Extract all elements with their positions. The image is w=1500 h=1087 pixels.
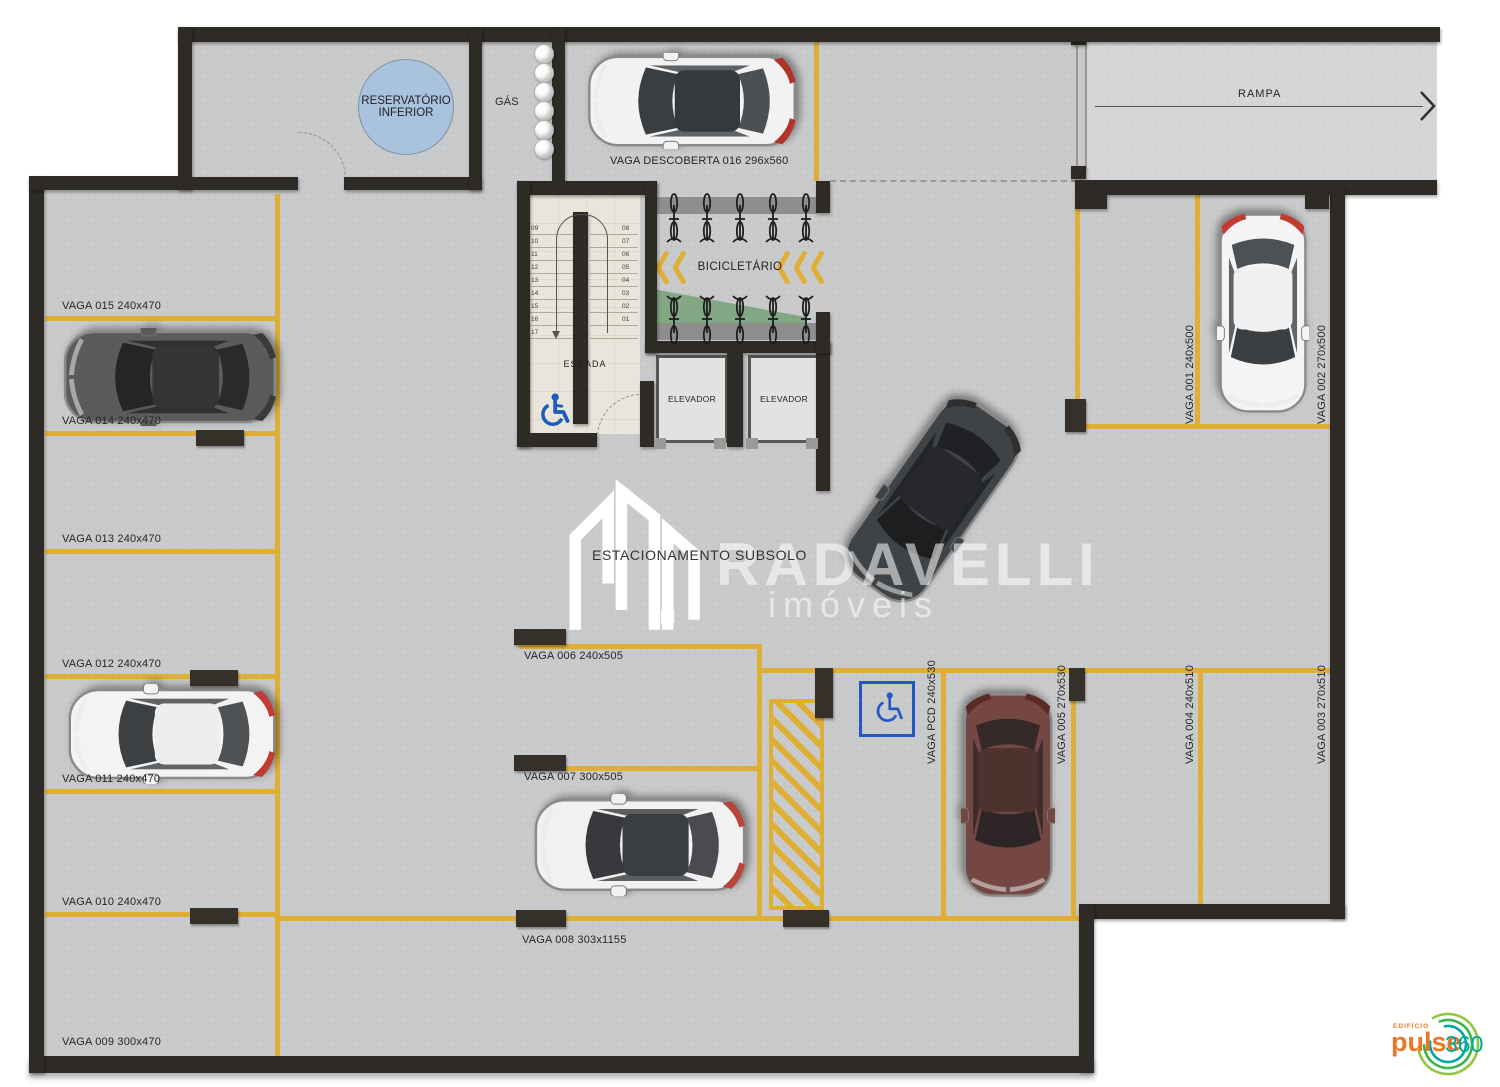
car-vaga-014 <box>62 328 278 426</box>
column <box>514 629 566 645</box>
ramp-bottom-wall <box>1075 180 1437 195</box>
gas-label: GÁS <box>495 96 519 108</box>
spot-label: VAGA 005 270x530 <box>1056 665 1068 764</box>
parking-line <box>814 35 819 181</box>
spot-label: VAGA 001 240x500 <box>1184 325 1196 424</box>
spot-label: VAGA 014 240x470 <box>62 415 161 427</box>
stair-guide-line <box>556 214 608 333</box>
parking-line <box>1075 196 1080 402</box>
ramp-gate <box>1076 40 1087 170</box>
column <box>190 670 238 686</box>
spot-label: VAGA 011 240x470 <box>62 773 160 785</box>
wall-stub <box>1305 193 1329 209</box>
spot-label: VAGA 007 300x505 <box>524 771 623 783</box>
car-vaga-016 <box>586 53 798 149</box>
bike-icon <box>763 193 783 249</box>
parking-floor-plan: RESERVATÓRIO INFERIOR GÁS VAGA DESCOBERT… <box>0 0 1500 1087</box>
bike-area-label: BICICLETÁRIO <box>698 261 783 273</box>
stair-wall-bottom <box>517 433 597 447</box>
stair-step-number: 17 <box>531 329 547 336</box>
gas-cylinder <box>534 139 554 159</box>
stair-step-number: 02 <box>622 303 638 310</box>
car-vaga-011 <box>67 684 277 784</box>
elevator-right-wall <box>816 341 830 491</box>
plan-title: ESTACIONAMENTO SUBSOLO <box>592 547 807 563</box>
parking-line <box>45 549 275 554</box>
gate-post <box>1071 166 1086 179</box>
outer-wall-left <box>29 176 44 1073</box>
spot-label: VAGA 004 240x510 <box>1184 665 1196 764</box>
elevator-door-post <box>746 438 758 449</box>
reservoir-label-line2: INFERIOR <box>379 107 434 119</box>
spot-label: VAGA 002 270x500 <box>1316 325 1328 424</box>
gas-cylinder <box>534 82 554 102</box>
stair-guide-arrow <box>552 331 560 339</box>
reservoir-circle: RESERVATÓRIO INFERIOR <box>358 59 454 155</box>
stair-step-number: 08 <box>622 225 638 232</box>
bike-icon <box>763 289 783 345</box>
bike-icon <box>697 289 717 345</box>
car-vaga-002 <box>1217 209 1309 417</box>
stair-step-number: 12 <box>531 264 547 271</box>
gas-cylinder <box>534 120 554 140</box>
column <box>196 430 244 446</box>
stair-step-number: 07 <box>622 238 638 245</box>
chevron-left-icon <box>810 250 828 284</box>
hatched-area <box>769 699 824 910</box>
stair-wall-right <box>640 381 654 447</box>
stair-step-number: 04 <box>622 277 638 284</box>
stair-step-number: 14 <box>531 290 547 297</box>
ramp-floor <box>1087 40 1437 182</box>
spot-label: VAGA 010 240x470 <box>62 896 161 908</box>
bike-icon <box>697 193 717 249</box>
accessible-parking-sign <box>859 681 915 737</box>
parking-line <box>275 194 280 1062</box>
stair-step-number: 16 <box>531 316 547 323</box>
reservoir-bottom-wall <box>344 177 481 190</box>
stair-step-number: 15 <box>531 303 547 310</box>
column <box>783 910 829 927</box>
gas-cylinder <box>534 63 554 83</box>
car-vaga-007 <box>533 794 747 896</box>
wall-stub <box>1075 193 1107 209</box>
elevator-door-post <box>714 438 726 449</box>
stair-step-number: 06 <box>622 251 638 258</box>
wheelchair-icon <box>537 392 570 427</box>
reservoir-left-wall <box>178 27 192 190</box>
bike-icon <box>730 193 750 249</box>
spot-label: VAGA PCD 240x530 <box>926 660 938 764</box>
step-wall <box>1079 904 1345 919</box>
bike-icon <box>796 193 816 249</box>
stair-step-number: 05 <box>622 264 638 271</box>
elevator-left: ELEVADOR <box>656 355 728 443</box>
column <box>190 908 238 924</box>
parking-line <box>45 789 275 794</box>
ramp-label: RAMPA <box>1238 88 1281 100</box>
parking-line <box>45 316 275 321</box>
parking-line <box>45 912 275 917</box>
stair-bike-divider <box>645 181 657 353</box>
reservoir-right-wall <box>469 27 482 190</box>
stair-label-wrap: ESCADA <box>550 354 620 372</box>
bike-area-label-wrap: BICICLETÁRIO <box>685 257 795 275</box>
parking-line <box>941 668 946 918</box>
bike-icon <box>664 289 684 345</box>
parking-line <box>761 668 1331 673</box>
spot-label: VAGA 006 240x505 <box>524 650 623 662</box>
elevator-right: ELEVADOR <box>748 355 820 443</box>
reservoir-label-line1: RESERVATÓRIO <box>361 95 450 107</box>
stair-label: ESCADA <box>563 359 606 369</box>
boundary-dashed-line <box>830 180 1077 182</box>
stair-step-number: 10 <box>531 238 547 245</box>
spot-label: VAGA 009 300x470 <box>62 1036 161 1048</box>
stair-step-number: 09 <box>531 225 547 232</box>
spot-label: VAGA 012 240x470 <box>62 658 161 670</box>
stair-wall-left <box>517 181 530 447</box>
parking-line <box>45 674 275 679</box>
car-vaga-005 <box>961 686 1055 904</box>
elevator-door-post <box>654 438 666 449</box>
bike-wall <box>816 312 830 353</box>
stair-step-number: 01 <box>622 316 638 323</box>
right-lower-wall <box>1079 904 1094 1072</box>
parking-line <box>1198 668 1203 918</box>
elevator-door-post <box>806 438 818 449</box>
parking-line <box>1085 424 1331 429</box>
logo-360: 360 <box>1445 1031 1483 1058</box>
outer-wall-bottom <box>29 1056 1094 1073</box>
column <box>815 668 833 718</box>
parking-line <box>280 916 1080 921</box>
bike-icon <box>664 193 684 249</box>
bike-icon <box>730 289 750 345</box>
elevator-left-label: ELEVADOR <box>668 394 716 404</box>
wheelchair-outline-icon <box>869 689 905 727</box>
column <box>516 910 566 927</box>
parking-line <box>757 644 762 921</box>
stair-step-number: 13 <box>531 277 547 284</box>
gas-cylinder <box>534 44 554 64</box>
ramp-centerline <box>1095 106 1423 107</box>
spot-label: VAGA 015 240x470 <box>62 300 161 312</box>
gas-cylinder <box>534 101 554 121</box>
stair-step-number: 11 <box>531 251 547 258</box>
bike-icon <box>796 289 816 345</box>
chevron-left-icon <box>793 250 811 284</box>
spot-label: VAGA 008 303x1155 <box>522 934 627 946</box>
column <box>1065 399 1086 432</box>
spot-label: VAGA 013 240x470 <box>62 533 161 545</box>
pulse360-logo: EDIFÍCIO pulse 360 <box>1385 1010 1490 1080</box>
stair-wall-top <box>517 181 657 195</box>
elevator-divider-wall <box>727 352 743 447</box>
ramp-arrow-icon <box>1418 90 1438 122</box>
gas-right-wall <box>552 27 565 190</box>
bike-wall <box>816 181 830 213</box>
parking-line <box>1071 668 1076 918</box>
outer-wall-top <box>178 27 1440 42</box>
column <box>514 755 566 771</box>
vaga-016-label: VAGA DESCOBERTA 016 296x560 <box>610 155 788 167</box>
spot-label: VAGA 003 270x510 <box>1316 665 1328 764</box>
elevator-right-label: ELEVADOR <box>760 394 808 404</box>
column <box>1069 668 1085 701</box>
outer-wall-right <box>1330 186 1345 918</box>
chevron-left-icon <box>655 250 673 284</box>
top-left-wall <box>29 176 192 190</box>
stair-step-number: 03 <box>622 290 638 297</box>
reservoir-bottom-wall <box>192 177 298 190</box>
